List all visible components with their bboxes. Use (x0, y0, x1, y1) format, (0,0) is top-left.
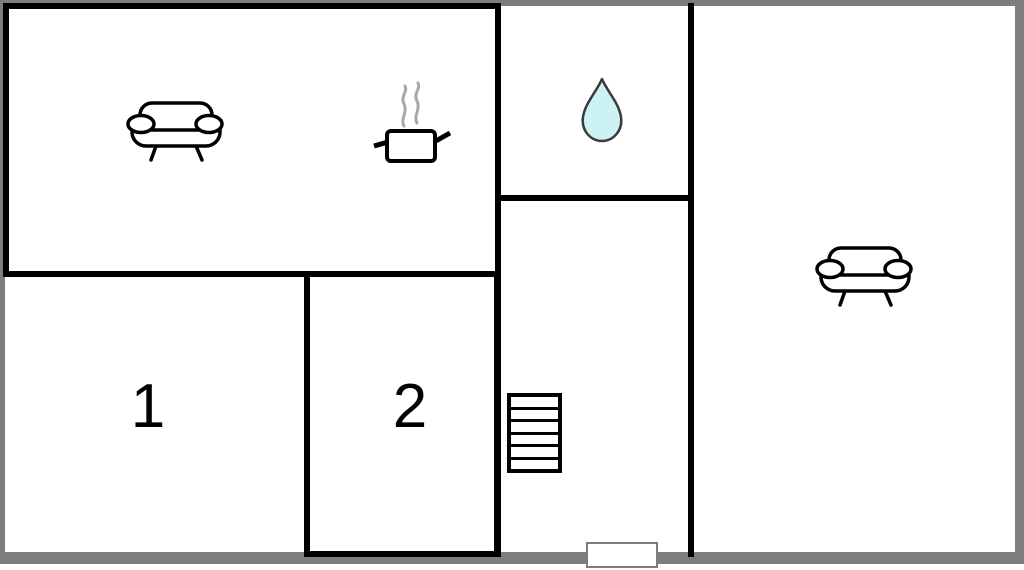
cooking-pot-icon (374, 83, 450, 161)
floor-plan: 1 2 (0, 0, 1024, 570)
steam-icon (416, 83, 419, 123)
sofa-icon (817, 248, 911, 305)
water-drop-icon (583, 79, 622, 141)
entrance-door (586, 542, 658, 568)
sofa-icon (128, 103, 222, 160)
steam-icon (403, 86, 406, 126)
icons-overlay (0, 0, 1024, 570)
